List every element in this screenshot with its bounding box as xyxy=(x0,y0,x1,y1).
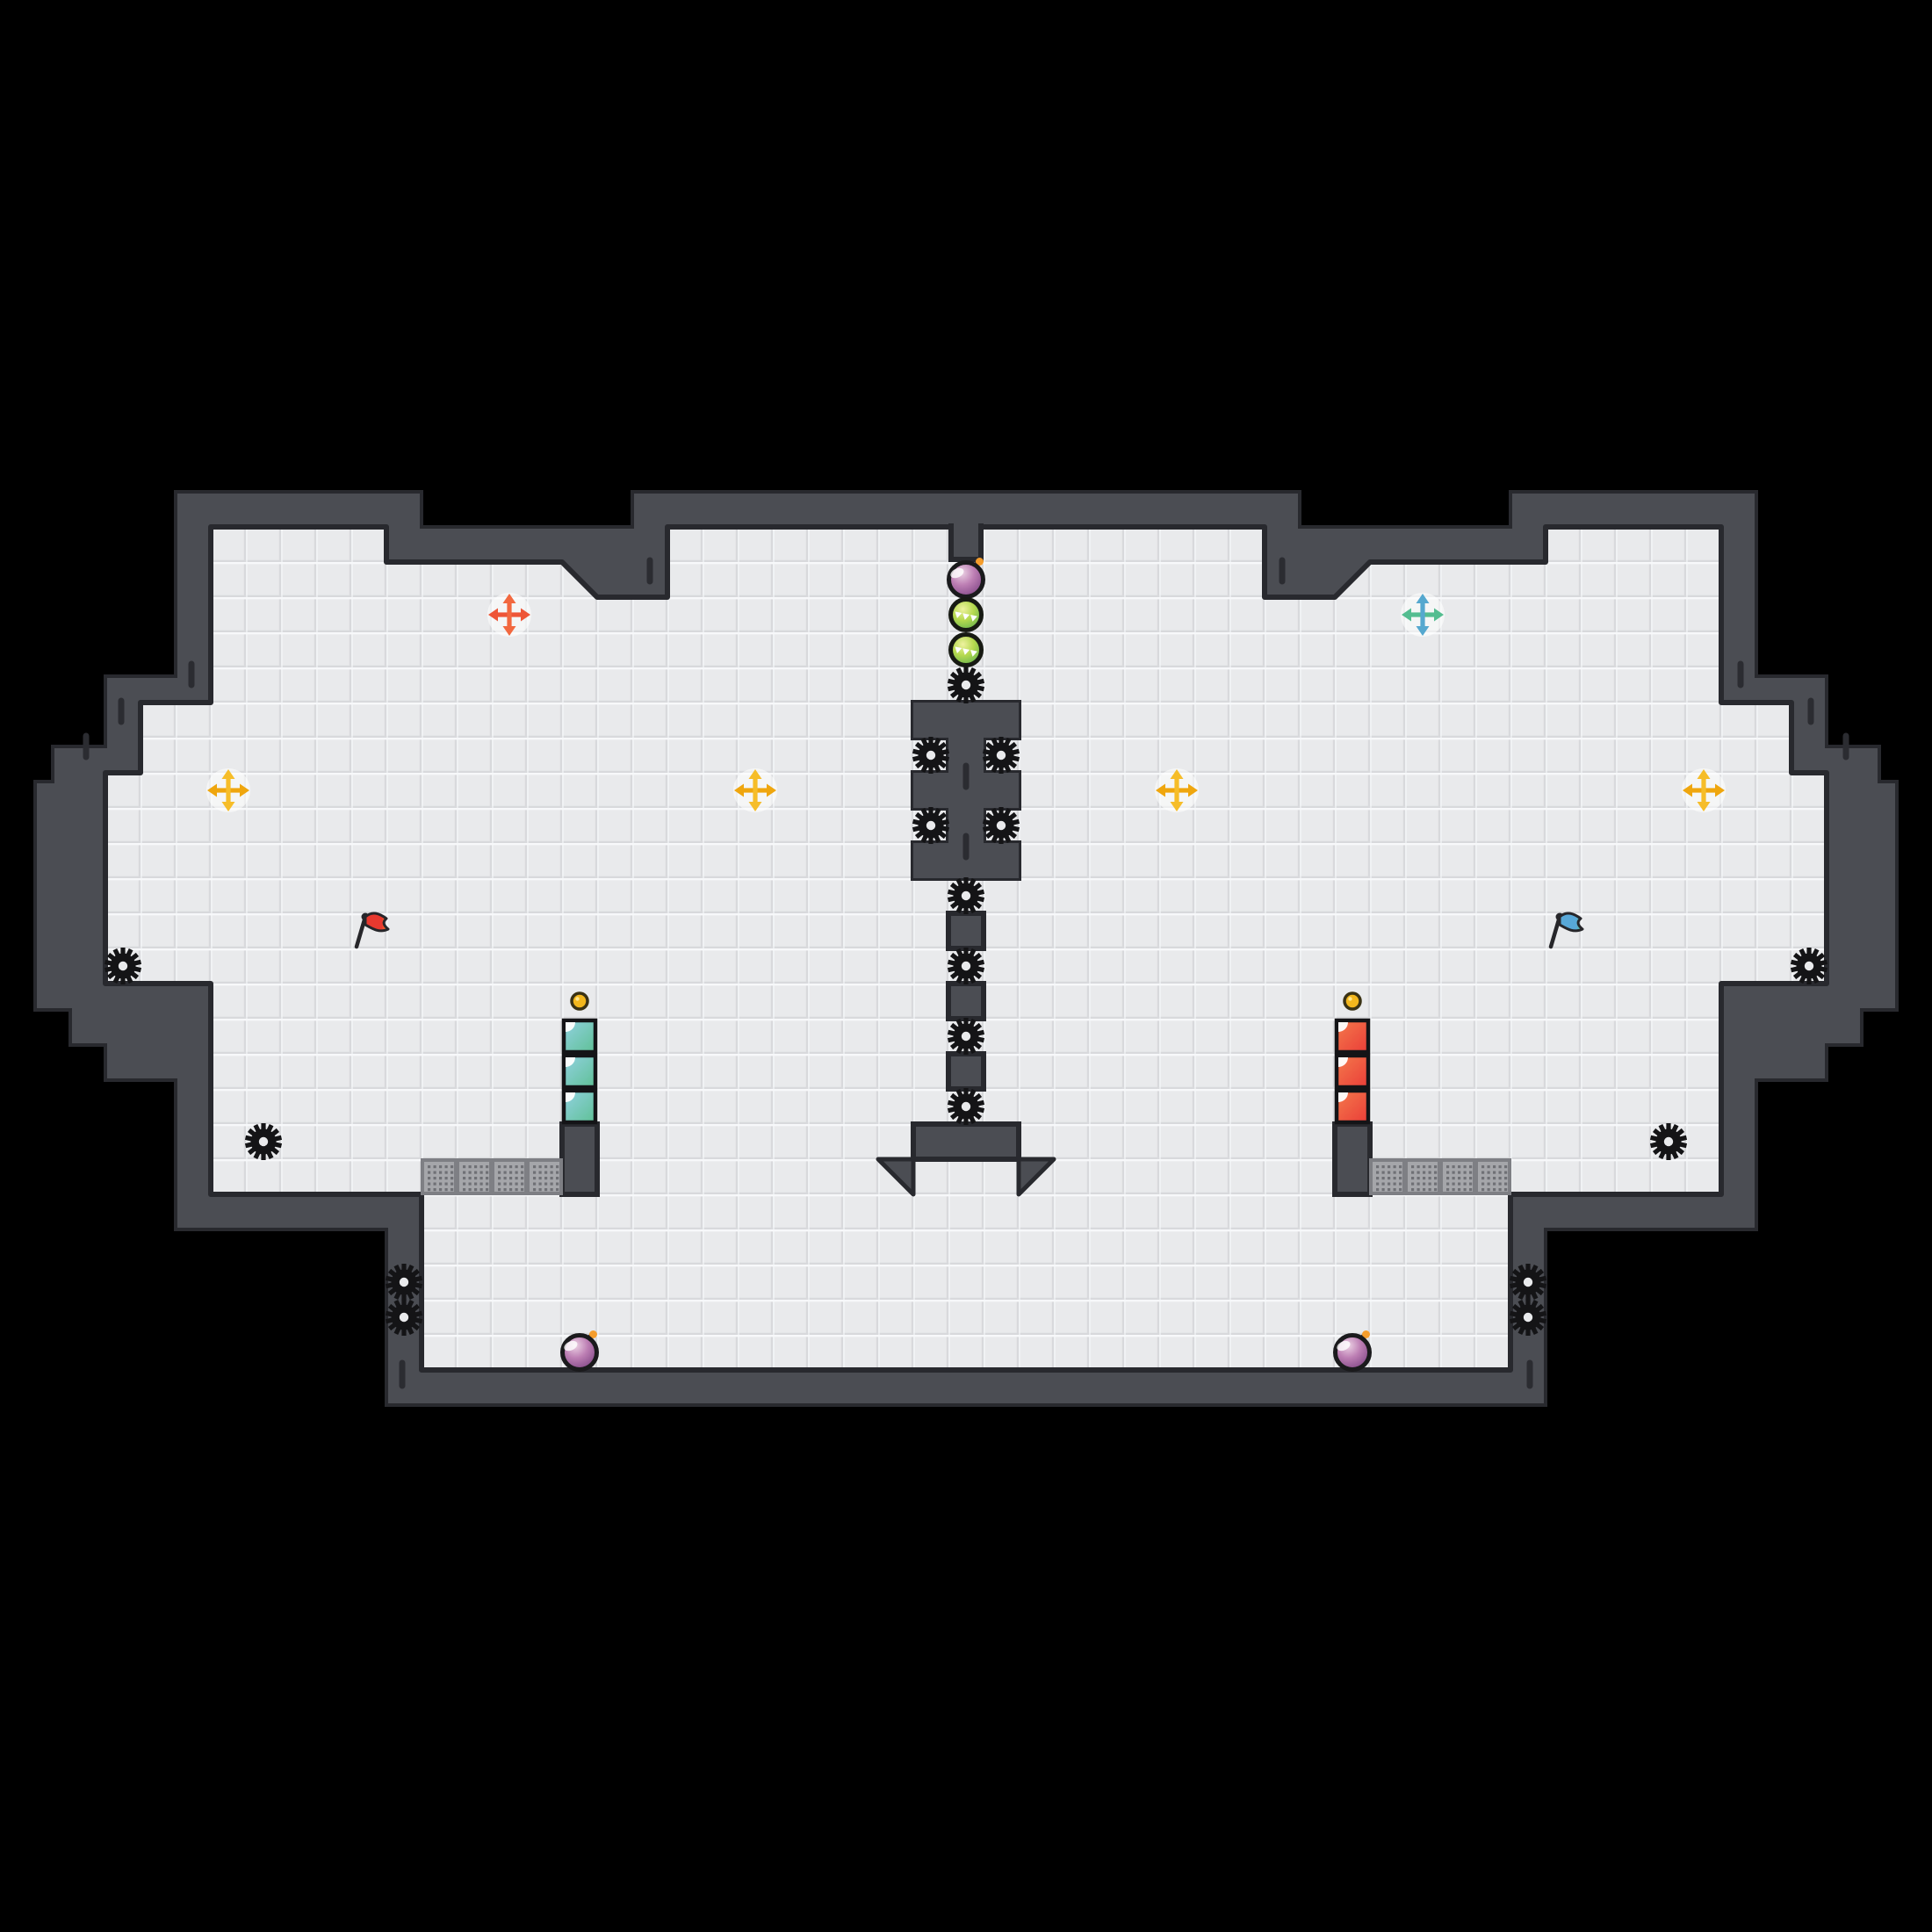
block-stack-red xyxy=(1337,1020,1368,1122)
pillar xyxy=(1335,1124,1370,1194)
conveyor-belt xyxy=(1370,1159,1510,1194)
four-way-arrow-marker xyxy=(1401,593,1445,637)
level-map-stage[interactable] xyxy=(0,0,1932,1932)
hanging-block xyxy=(948,1054,984,1089)
block-stack-teal xyxy=(564,1020,595,1122)
coin-icon xyxy=(572,993,588,1009)
center-platform xyxy=(913,1124,1019,1159)
boost-orb-icon xyxy=(951,635,982,666)
conveyor-belt xyxy=(422,1159,562,1194)
level-canvas[interactable] xyxy=(0,0,1932,1932)
hanging-block xyxy=(948,913,984,948)
four-way-arrow-marker xyxy=(487,593,531,637)
four-way-arrow-marker xyxy=(1155,768,1199,812)
four-way-arrow-marker xyxy=(206,768,250,812)
hanging-block xyxy=(948,984,984,1019)
four-way-arrow-marker xyxy=(733,768,777,812)
coin-icon xyxy=(1344,993,1360,1009)
pillar xyxy=(562,1124,597,1194)
four-way-arrow-marker xyxy=(1682,768,1726,812)
boost-orb-icon xyxy=(951,600,982,631)
